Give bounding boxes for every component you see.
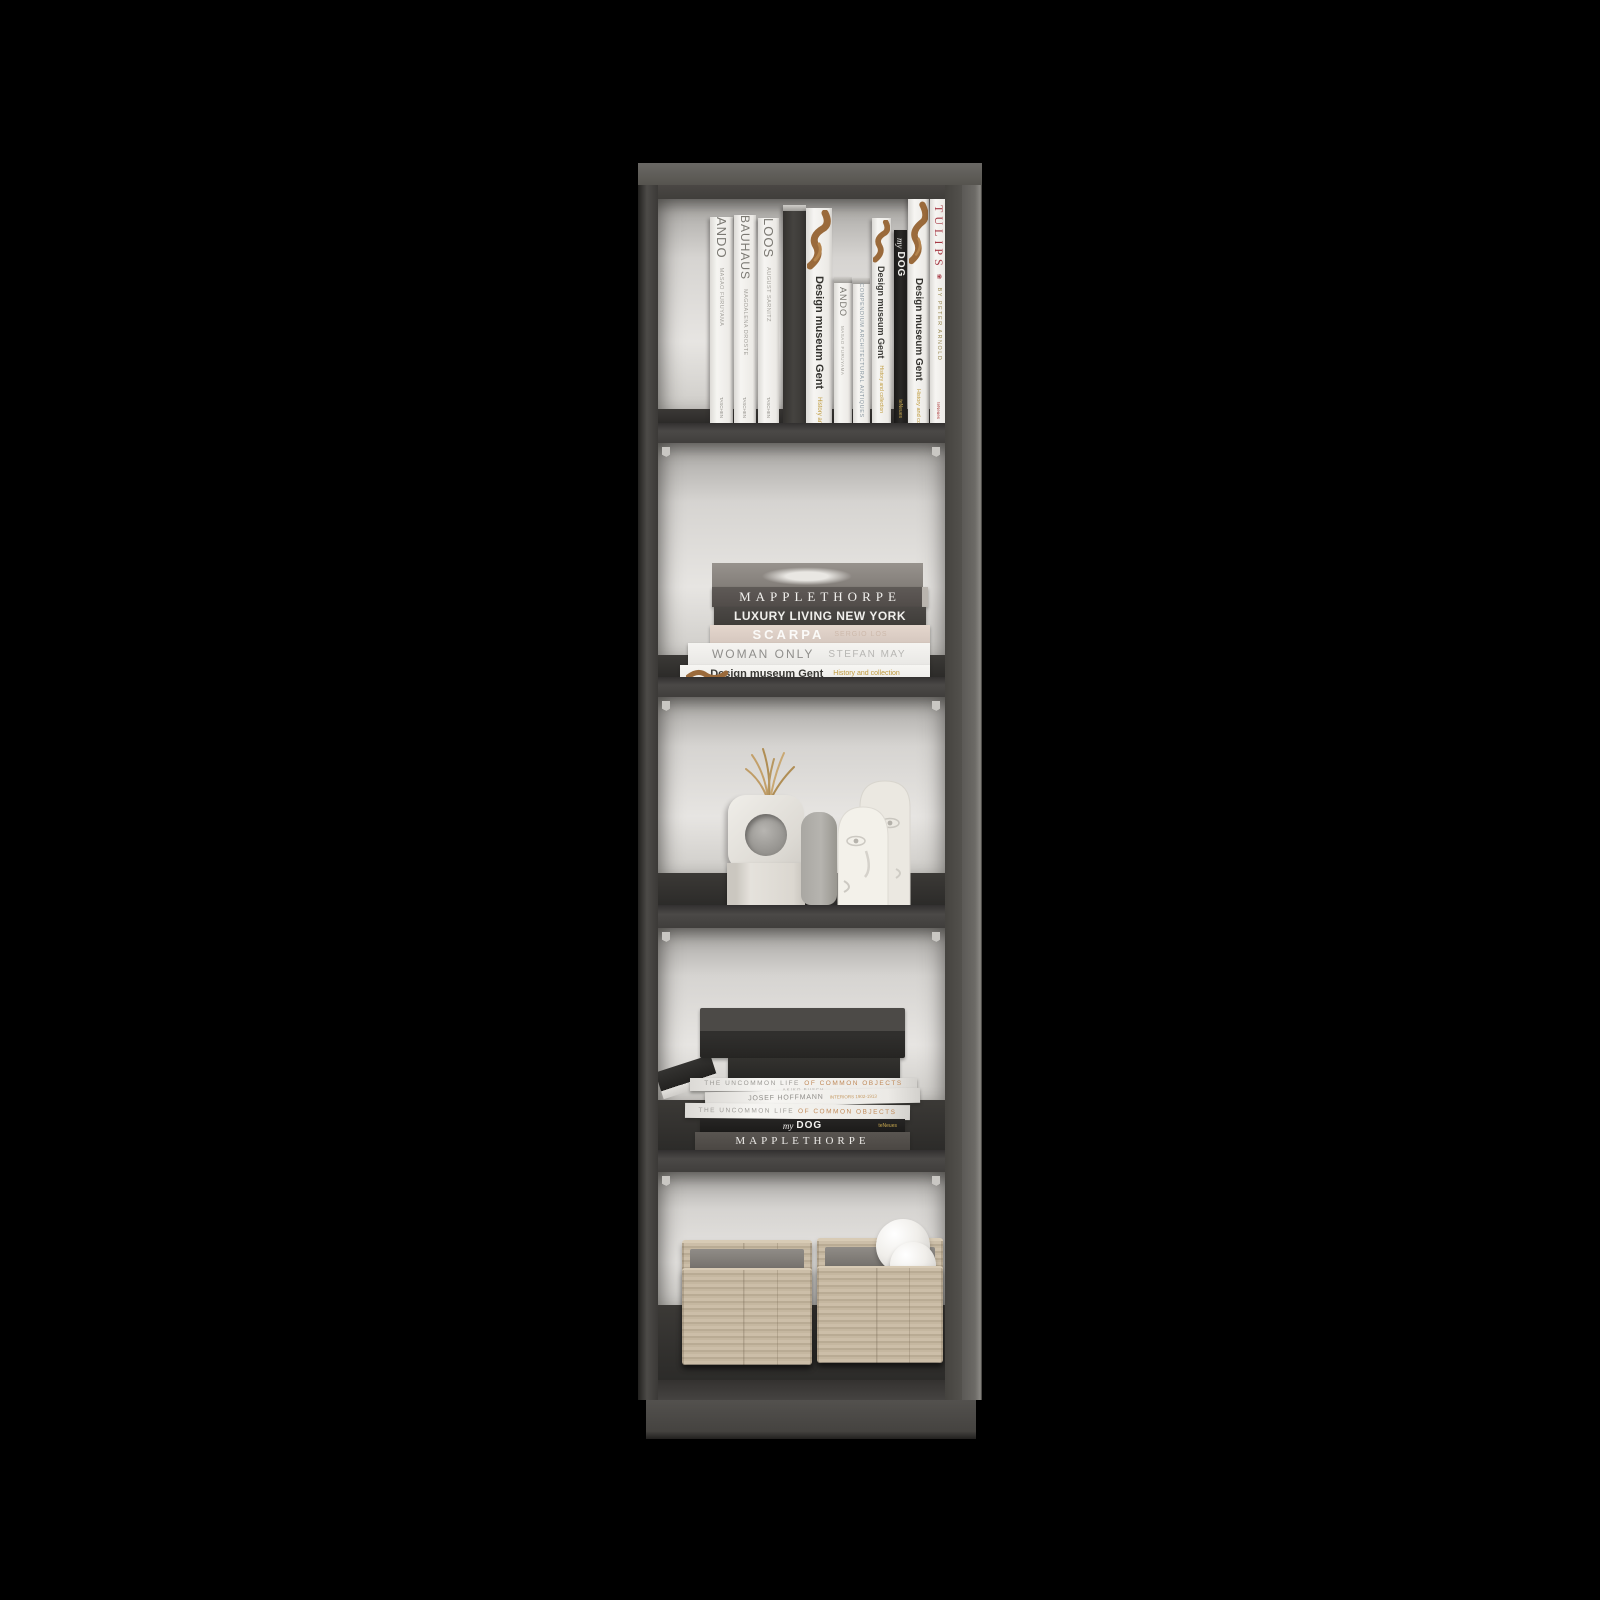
book-spine-bauhaus: BAUHAUS MAGDALENA DROSTE TASCHEN <box>734 215 756 423</box>
book-title-prefix: my <box>783 1121 794 1131</box>
book-title: SCARPA <box>752 627 824 642</box>
book-stack-spine-scarpa: SCARPA SERGIO LOS <box>710 625 930 643</box>
book-title: Design museum Gent <box>877 266 887 359</box>
book-title: Design museum Gent <box>913 278 924 381</box>
book-title-prefix: my <box>896 238 906 249</box>
ring-vase <box>728 795 804 871</box>
book-subtitle: SERGIO LOS <box>834 631 887 638</box>
book-subtitle: History and collection <box>916 389 922 423</box>
book-title: COMPENDIUM ARCHITECTURAL ANTIQUES <box>859 283 865 418</box>
book-title-right: NEW YORK <box>836 609 906 623</box>
right-frame-front <box>945 185 962 1400</box>
shelf-board-2 <box>658 677 945 697</box>
book-title: THE UNCOMMON LIFE <box>704 1080 800 1087</box>
book-subtitle: History and collection <box>816 397 822 423</box>
page-edge <box>922 587 928 607</box>
book-subtitle: STEFAN MAY <box>828 649 906 660</box>
book-title: BAUHAUS <box>738 215 752 280</box>
basket-right-front <box>817 1266 943 1362</box>
book-title: Design museum Gent <box>813 276 825 389</box>
book-title-2: OF COMMON OBJECTS <box>798 1108 897 1116</box>
book-publisher: teNeues <box>937 402 942 424</box>
book-stack-dark-large <box>700 1008 905 1058</box>
book-title: WOMAN ONLY <box>712 647 814 661</box>
shelf-board-1 <box>658 423 945 443</box>
book-spine-my-dog: my DOG teNeues <box>894 230 907 423</box>
book-stack-spine-mapplethorpe: MAPPLETHORPE <box>712 587 928 607</box>
book-title: DOG <box>895 252 906 278</box>
book-title: THE UNCOMMON LIFE <box>698 1107 794 1115</box>
book-title: LOOS <box>761 218 776 258</box>
tulip-icon: ❀ <box>935 274 943 280</box>
book-spine-ando: ANDO MASAO FURUYAMA TASCHEN <box>710 217 733 423</box>
book-publisher: TASCHEN <box>719 397 724 423</box>
book-spine-compendium: COMPENDIUM ARCHITECTURAL ANTIQUES <box>853 278 870 423</box>
book-spine-loos: LOOS AUGUST SARNITZ TASCHEN <box>758 218 779 423</box>
book-author: MAGDALENA DROSTE <box>742 289 748 356</box>
dried-grass <box>738 745 800 801</box>
book-stack-spine-woman-only: WOMAN ONLY STEFAN MAY <box>688 643 930 665</box>
book-title: MAPPLETHORPE <box>735 1135 869 1147</box>
bookcase: ANDO MASAO FURUYAMA TASCHEN BAUHAUS MAGD… <box>638 163 982 1439</box>
book-subtitle: History and collection <box>879 366 885 414</box>
book-title: ANDO <box>838 287 848 317</box>
basket-left-front <box>682 1268 812 1364</box>
book-author: BY PETER ARNOLD <box>936 288 942 362</box>
book-stack-spine-uncommon-2: THE UNCOMMON LIFE OF COMMON OBJECTS <box>685 1103 910 1120</box>
right-side-panel <box>962 185 982 1400</box>
book-spine-design-museum-gent-2: Design museum Gent History and collectio… <box>872 218 891 423</box>
book-spine-plain-dark <box>783 205 806 423</box>
book-spine-design-museum-gent-3: Design museum Gent History and collectio… <box>908 192 929 423</box>
book-title-left: LUXURY LIVING <box>734 609 833 623</box>
book-title: MAPPLETHORPE <box>739 589 901 605</box>
bottom-board <box>658 1380 945 1400</box>
book-spine-ando-2: ANDO MASAO FURUYAMA <box>834 277 852 423</box>
book-title: DOG <box>796 1120 822 1131</box>
bookcase-top-edge <box>638 185 982 199</box>
book-stack-spine-luxury-living: LUXURY LIVING NEW YORK <box>714 607 926 625</box>
ring-vase-hole <box>745 814 787 856</box>
book-publisher: teNeues <box>878 1123 897 1129</box>
book-title: ANDO <box>714 217 729 259</box>
book-stack-dark-small <box>728 1058 900 1078</box>
product-image-canvas: ANDO MASAO FURUYAMA TASCHEN BAUHAUS MAGD… <box>0 0 1600 1600</box>
book-publisher: TASCHEN <box>743 397 748 423</box>
shelf-board-3 <box>658 905 945 928</box>
plinth-base <box>646 1400 976 1439</box>
book-subtitle: INTERIORS 1902-1913 <box>829 1094 876 1100</box>
bookcase-top <box>638 163 982 185</box>
book-stack-spine-mapplethorpe-2: MAPPLETHORPE <box>695 1132 910 1150</box>
book-author: AUGUST SARNITZ <box>766 267 772 322</box>
book-publisher: TASCHEN <box>766 397 771 423</box>
book-spine-design-museum-gent-1: Design museum Gent History and collectio… <box>806 208 832 423</box>
book-title-2: OF COMMON OBJECTS <box>804 1080 902 1087</box>
book-author: MASAO FURUYAMA <box>719 268 725 327</box>
book-subtitle: History and collection <box>833 670 900 677</box>
shelf-board-4 <box>658 1150 945 1172</box>
page-edge <box>783 205 806 211</box>
book-publisher: teNeues <box>898 399 904 423</box>
book-title: JOSEF HOFFMANN <box>748 1094 824 1103</box>
book-author: MASAO FURUYAMA <box>841 326 846 375</box>
left-side-panel <box>638 185 658 1400</box>
book-cover-top-mapplethorpe <box>712 563 923 587</box>
face-sculpture <box>830 777 922 925</box>
book-stack-spine-my-dog: my DOG teNeues <box>700 1119 905 1132</box>
